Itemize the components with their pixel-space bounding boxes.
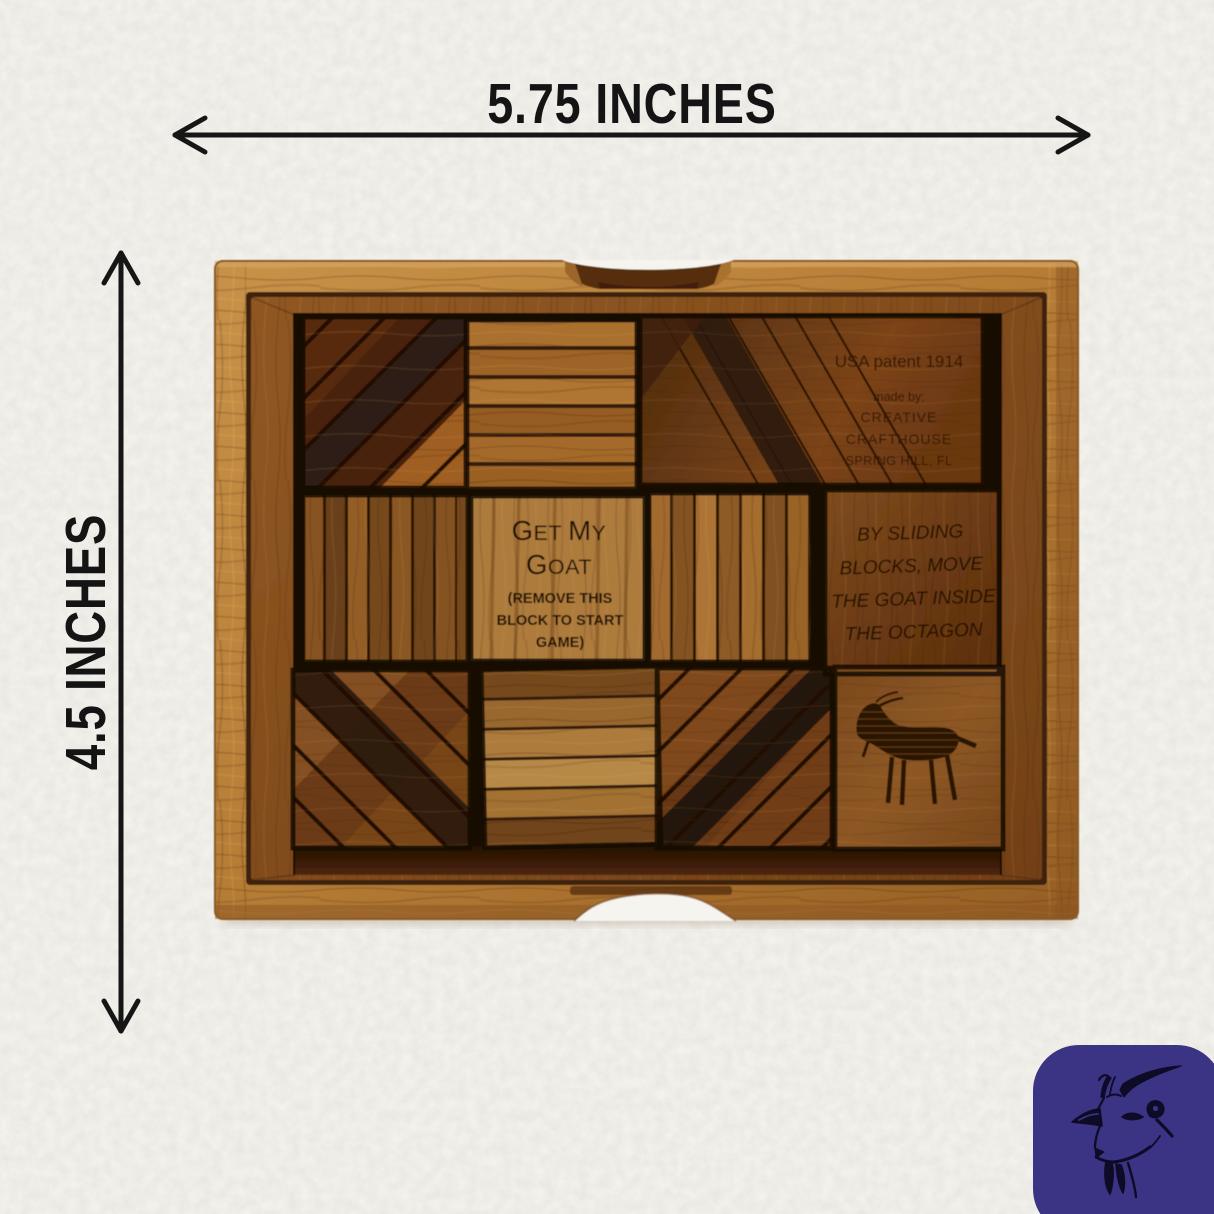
svg-text:5.75 INCHES: 5.75 INCHES [487, 73, 777, 136]
svg-text:4.5 INCHES: 4.5 INCHES [53, 514, 117, 770]
